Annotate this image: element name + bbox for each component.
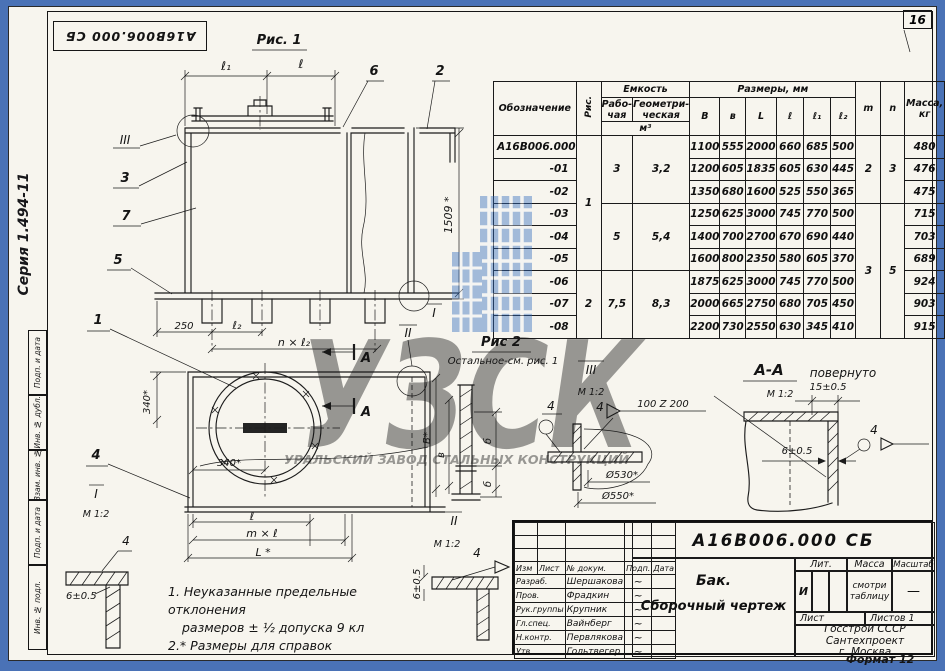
massa-value: смотри таблицу	[847, 571, 892, 612]
margin-stamp-label: Подп. и дата	[33, 337, 42, 388]
detail-iii: III М 1:2 4 4 100 Z 200 Ø530* Ø550*	[539, 361, 706, 508]
fig2-dim-L: L *	[255, 546, 271, 559]
series-label: Серия 1.494-11	[16, 139, 34, 329]
col-header-ris: Рис.	[576, 82, 601, 136]
fig2-section-a1: А	[360, 351, 371, 366]
cell-B: 1250	[690, 203, 720, 226]
fig1-callout-5: 5	[113, 253, 122, 268]
table-row: А16В006.000 1 3 3,2 1100 555 2000 660 68…	[494, 136, 945, 159]
fig2-dim-B: В*	[422, 432, 433, 444]
cell-l2: 500	[830, 203, 856, 226]
cell-l: 580	[776, 248, 803, 271]
fig1-view-i-flag: I	[432, 306, 436, 320]
cell-name: -07	[494, 293, 577, 316]
cell-B: 2200	[690, 316, 720, 339]
notes: 1. Неуказанные предельные отклонения раз…	[168, 583, 438, 656]
fig1-callout-2: 2	[435, 64, 444, 79]
detail-ii-weld-num: 4	[473, 546, 481, 560]
cell-name: -08	[494, 316, 577, 339]
cell-name: -05	[494, 248, 577, 271]
massa-header: Масса	[847, 558, 892, 571]
org-line1: Госстрой СССР	[824, 624, 906, 635]
section-aa-dim15: 15±0.5	[809, 382, 846, 393]
sig-name: Гольтвегер	[565, 645, 624, 659]
lit-cell-3	[829, 571, 847, 612]
margin-stamp-label: Инв. № подл.	[33, 581, 42, 634]
fig1-dim-l2: ℓ₂	[232, 319, 243, 332]
sig-role: Пров.	[515, 589, 566, 603]
detail-iii-dia1: Ø530*	[605, 469, 638, 481]
cell-mass: 480	[905, 136, 945, 159]
cell-v: 800	[720, 248, 746, 271]
cell-n-group2: 5	[881, 203, 905, 338]
cell-l: 680	[776, 293, 803, 316]
view-i-label: I	[94, 487, 98, 501]
cell-l2: 500	[830, 271, 856, 294]
fig1-dim-l: ℓ	[298, 57, 304, 71]
margin-stamp-vzam-inv: Взам. инв. №	[28, 450, 47, 500]
cell-B: 1200	[690, 158, 720, 181]
cell-L: 1600	[746, 181, 777, 204]
section-aa-label: А-А	[753, 361, 783, 379]
section-aa: А-А повернуто М 1:2 15±0.5 6±0.5 4	[714, 361, 929, 511]
cell-L: 3000	[746, 271, 777, 294]
sig-name: Вайнберг	[565, 617, 624, 631]
top-inverted-stamp: А16В006.000 СБ	[53, 21, 207, 51]
detail-i: 4 6±0.5	[66, 534, 132, 648]
cell-l2: 370	[830, 248, 856, 271]
cell-v: 625	[720, 203, 746, 226]
view-ii-scale: М 1:2	[434, 539, 461, 550]
detail-i-dim: 6±0.5	[66, 591, 97, 602]
cell-ris-group1: 1	[576, 136, 601, 271]
fig1-view-iii-flag: III	[120, 133, 131, 147]
fig1-dim-height: 1509 *	[442, 196, 455, 233]
cell-l2: 440	[830, 226, 856, 249]
margin-stamp-podp-data-2: Подп. и дата	[28, 500, 47, 565]
cell-l1: 690	[804, 226, 830, 249]
cell-v: 700	[720, 226, 746, 249]
cell-l: 745	[776, 203, 803, 226]
fig1-view-ii-flag: II	[404, 326, 412, 340]
cell-mass: 475	[905, 181, 945, 204]
lit-cell-2	[812, 571, 829, 612]
fig1-callout-7: 7	[121, 209, 131, 224]
fig2-dim-ml: m × ℓ	[246, 527, 277, 540]
section-aa-dim6: 6±0.5	[782, 446, 813, 457]
fig2-dim-b2: б	[482, 481, 494, 487]
part-name-line2: Сборочный чертеж	[633, 599, 794, 614]
cell-L: 3000	[746, 203, 777, 226]
cell-l1: 630	[804, 158, 830, 181]
col-header-obozn: Обозначение	[494, 82, 577, 136]
cell-m-group1: 2	[856, 136, 881, 204]
section-aa-weld-num: 4	[870, 423, 878, 437]
cell-v: 665	[720, 293, 746, 316]
cell-L: 2700	[746, 226, 777, 249]
cell-l: 745	[776, 271, 803, 294]
title-block: Изм Лист № докум. Подп. Дата Разраб.Шерш…	[512, 520, 933, 655]
cell-l1: 705	[804, 293, 830, 316]
cell-l: 605	[776, 158, 803, 181]
col-header-emkost: Емкость	[601, 82, 690, 98]
view-ii-label: II	[450, 514, 458, 528]
cell-name: -03	[494, 203, 577, 226]
cell-l: 660	[776, 136, 803, 159]
lit-header: Лит.	[795, 558, 847, 571]
cell-v: 605	[720, 158, 746, 181]
cell-mass: 689	[905, 248, 945, 271]
margin-stamp-label: Инв. № дубл.	[33, 396, 42, 449]
fig2: Рис 2 Остальное-см. рис. 1 А А 340* 340*…	[83, 335, 559, 562]
cell-mass: 915	[905, 316, 945, 339]
margin-stamp-inv-dubl: Инв. № дубл.	[28, 395, 47, 450]
cell-rab-group3: 7,5	[601, 271, 632, 339]
col-header-m: m	[856, 82, 881, 136]
cell-B: 1600	[690, 248, 720, 271]
col-header-n: n	[881, 82, 905, 136]
fig2-dim-340h: 340*	[217, 458, 241, 469]
sig-role: Н.контр.	[515, 631, 566, 645]
sheetnum-leader	[904, 30, 910, 52]
col-header-L: L	[746, 98, 777, 136]
cell-l2: 500	[830, 136, 856, 159]
sheet-number-box: 16	[903, 10, 932, 29]
cell-v: 730	[720, 316, 746, 339]
margin-stamp-podp-data-1: Подп. и дата	[28, 330, 47, 395]
fig1-callout-6: 6	[369, 64, 378, 79]
detail-iii-dia2: Ø550*	[601, 490, 634, 502]
cell-name: -04	[494, 226, 577, 249]
cell-ris-group2: 2	[576, 271, 601, 339]
col-header-l: ℓ	[776, 98, 803, 136]
cell-v: 555	[720, 136, 746, 159]
sig-role: Разраб.	[515, 575, 566, 589]
org-line2: Сантехпроект	[826, 636, 904, 647]
cell-l: 670	[776, 226, 803, 249]
fig2-dim-340v: 340*	[142, 390, 153, 414]
col-header-v: в	[720, 98, 746, 136]
cell-L: 2000	[746, 136, 777, 159]
margin-stamp-label: Взам. инв. №	[33, 449, 42, 501]
cell-B: 2000	[690, 293, 720, 316]
cell-l1: 550	[804, 181, 830, 204]
cell-name: -06	[494, 271, 577, 294]
cell-B: 1875	[690, 271, 720, 294]
scanned-engineering-drawing: { "sheet":{"number":"16","series":"Серия…	[0, 0, 945, 671]
cell-mass: 903	[905, 293, 945, 316]
fig2-dim-b1: б	[482, 438, 494, 444]
cell-l2: 365	[830, 181, 856, 204]
sheet-number: 16	[909, 13, 926, 27]
format-label: Формат 12	[846, 653, 936, 666]
cell-B: 1350	[690, 181, 720, 204]
detail-i-weld-num: 4	[122, 534, 130, 548]
col-header-l1: ℓ₁	[804, 98, 830, 136]
cell-m-group2: 3	[856, 203, 881, 338]
fig1-title: Рис. 1	[257, 33, 302, 48]
table-row: -03 5 5,4 12506253000745770500 3 5 715	[494, 203, 945, 226]
note-2: 2.* Размеры для справок	[168, 637, 438, 655]
sig-name: Фрадкин	[565, 589, 624, 603]
col-header-razmery: Размеры, мм	[690, 82, 856, 98]
cell-rab-group1: 3	[601, 136, 632, 204]
cell-l: 525	[776, 181, 803, 204]
note-1-line-1: 1. Неуказанные предельные отклонения	[168, 583, 438, 619]
sig-role: Гл.спец.	[515, 617, 566, 631]
cell-l: 630	[776, 316, 803, 339]
cell-B: 1100	[690, 136, 720, 159]
cell-l1: 605	[804, 248, 830, 271]
fig1: Рис. 1 ℓ₁ ℓ 6 2 1509 * 250 ℓ₂ n × ℓ₂ III…	[87, 33, 464, 388]
fig2-dim-l: ℓ	[249, 510, 255, 523]
margin-stamp-label: Подп. и дата	[33, 507, 42, 558]
document-number: А16В006.000 СБ	[632, 522, 935, 558]
section-aa-suffix: повернуто	[810, 366, 877, 380]
cell-l2: 445	[830, 158, 856, 181]
cell-l1: 685	[804, 136, 830, 159]
cell-B: 1400	[690, 226, 720, 249]
cell-name: А16В006.000	[494, 136, 577, 159]
detail-iii-weld-b: 4	[596, 400, 604, 414]
spec-table: Обозначение Рис. Емкость Размеры, мм m n…	[493, 81, 945, 339]
cell-geom-group1: 3,2	[633, 136, 690, 204]
part-name: Бак. Сборочный чертеж	[632, 558, 795, 657]
cell-L: 2750	[746, 293, 777, 316]
sig-col-doc: № докум.	[565, 562, 624, 575]
fig1-callout-1: 1	[93, 313, 102, 328]
detail-iii-weld-spec: 100 Z 200	[637, 399, 688, 410]
sig-col-izm: Изм	[515, 562, 538, 575]
part-name-line1: Бак.	[633, 573, 794, 589]
cell-mass: 703	[905, 226, 945, 249]
col-header-B: В	[690, 98, 720, 136]
view-iii-scale: М 1:2	[578, 387, 605, 398]
sig-role: Рук.группы	[515, 603, 566, 617]
cell-rab-group2: 5	[601, 203, 632, 271]
note-1-line-2: размеров ± ½ допуска 9 кл	[168, 619, 438, 637]
cell-L: 2550	[746, 316, 777, 339]
top-stamp-text: А16В006.000 СБ	[65, 29, 196, 44]
col-header-ris-text: Рис.	[584, 96, 594, 118]
cell-L: 1835	[746, 158, 777, 181]
cell-v: 625	[720, 271, 746, 294]
detail-iii-weld-a: 4	[547, 399, 555, 413]
cell-l2: 410	[830, 316, 856, 339]
cell-mass: 715	[905, 203, 945, 226]
masshtab-value: —	[892, 571, 935, 612]
fig1-dim-l1: ℓ₁	[220, 59, 231, 73]
col-header-l2: ℓ₂	[830, 98, 856, 136]
fig2-callout-4: 4	[90, 448, 100, 463]
cell-L: 2350	[746, 248, 777, 271]
fig1-callout-3: 3	[120, 171, 129, 186]
cell-geom-group3: 8,3	[633, 271, 690, 339]
sig-name: Шершакова	[565, 575, 624, 589]
masshtab-header: Масштаб	[892, 558, 935, 571]
sig-col-list: Лист	[537, 562, 565, 575]
cell-mass: 476	[905, 158, 945, 181]
cell-l1: 770	[804, 203, 830, 226]
view-i-scale: М 1:2	[83, 509, 110, 520]
cell-v: 680	[720, 181, 746, 204]
fig2-subtitle: Остальное-см. рис. 1	[448, 356, 559, 367]
sig-name: Первлякова	[565, 631, 624, 645]
cell-n-group1: 3	[881, 136, 905, 204]
fig1-dim-250: 250	[174, 321, 193, 332]
margin-stamp-inv-podl: Инв. № подл.	[28, 565, 47, 650]
col-header-m3: м³	[601, 122, 690, 136]
cell-mass: 924	[905, 271, 945, 294]
cell-geom-group2: 5,4	[633, 203, 690, 271]
cell-l1: 345	[804, 316, 830, 339]
cell-l2: 450	[830, 293, 856, 316]
col-header-rab: Рабо-чая	[601, 98, 632, 122]
col-header-massa: Масса, кг	[905, 82, 945, 136]
col-header-geom: Геометри-ческая	[633, 98, 690, 122]
cell-l1: 770	[804, 271, 830, 294]
cell-name: -01	[494, 158, 577, 181]
cell-name: -02	[494, 181, 577, 204]
view-iii-label: III	[586, 363, 597, 377]
lit-value: И	[795, 571, 812, 612]
fig2-dim-v: в	[436, 452, 447, 458]
sig-name: Крупник	[565, 603, 624, 617]
fig2-section-a2: А	[360, 405, 371, 420]
section-aa-scale: М 1:2	[767, 389, 794, 400]
sig-role: Утв.	[515, 645, 566, 659]
fig1-dim-nl2: n × ℓ₂	[278, 336, 311, 349]
